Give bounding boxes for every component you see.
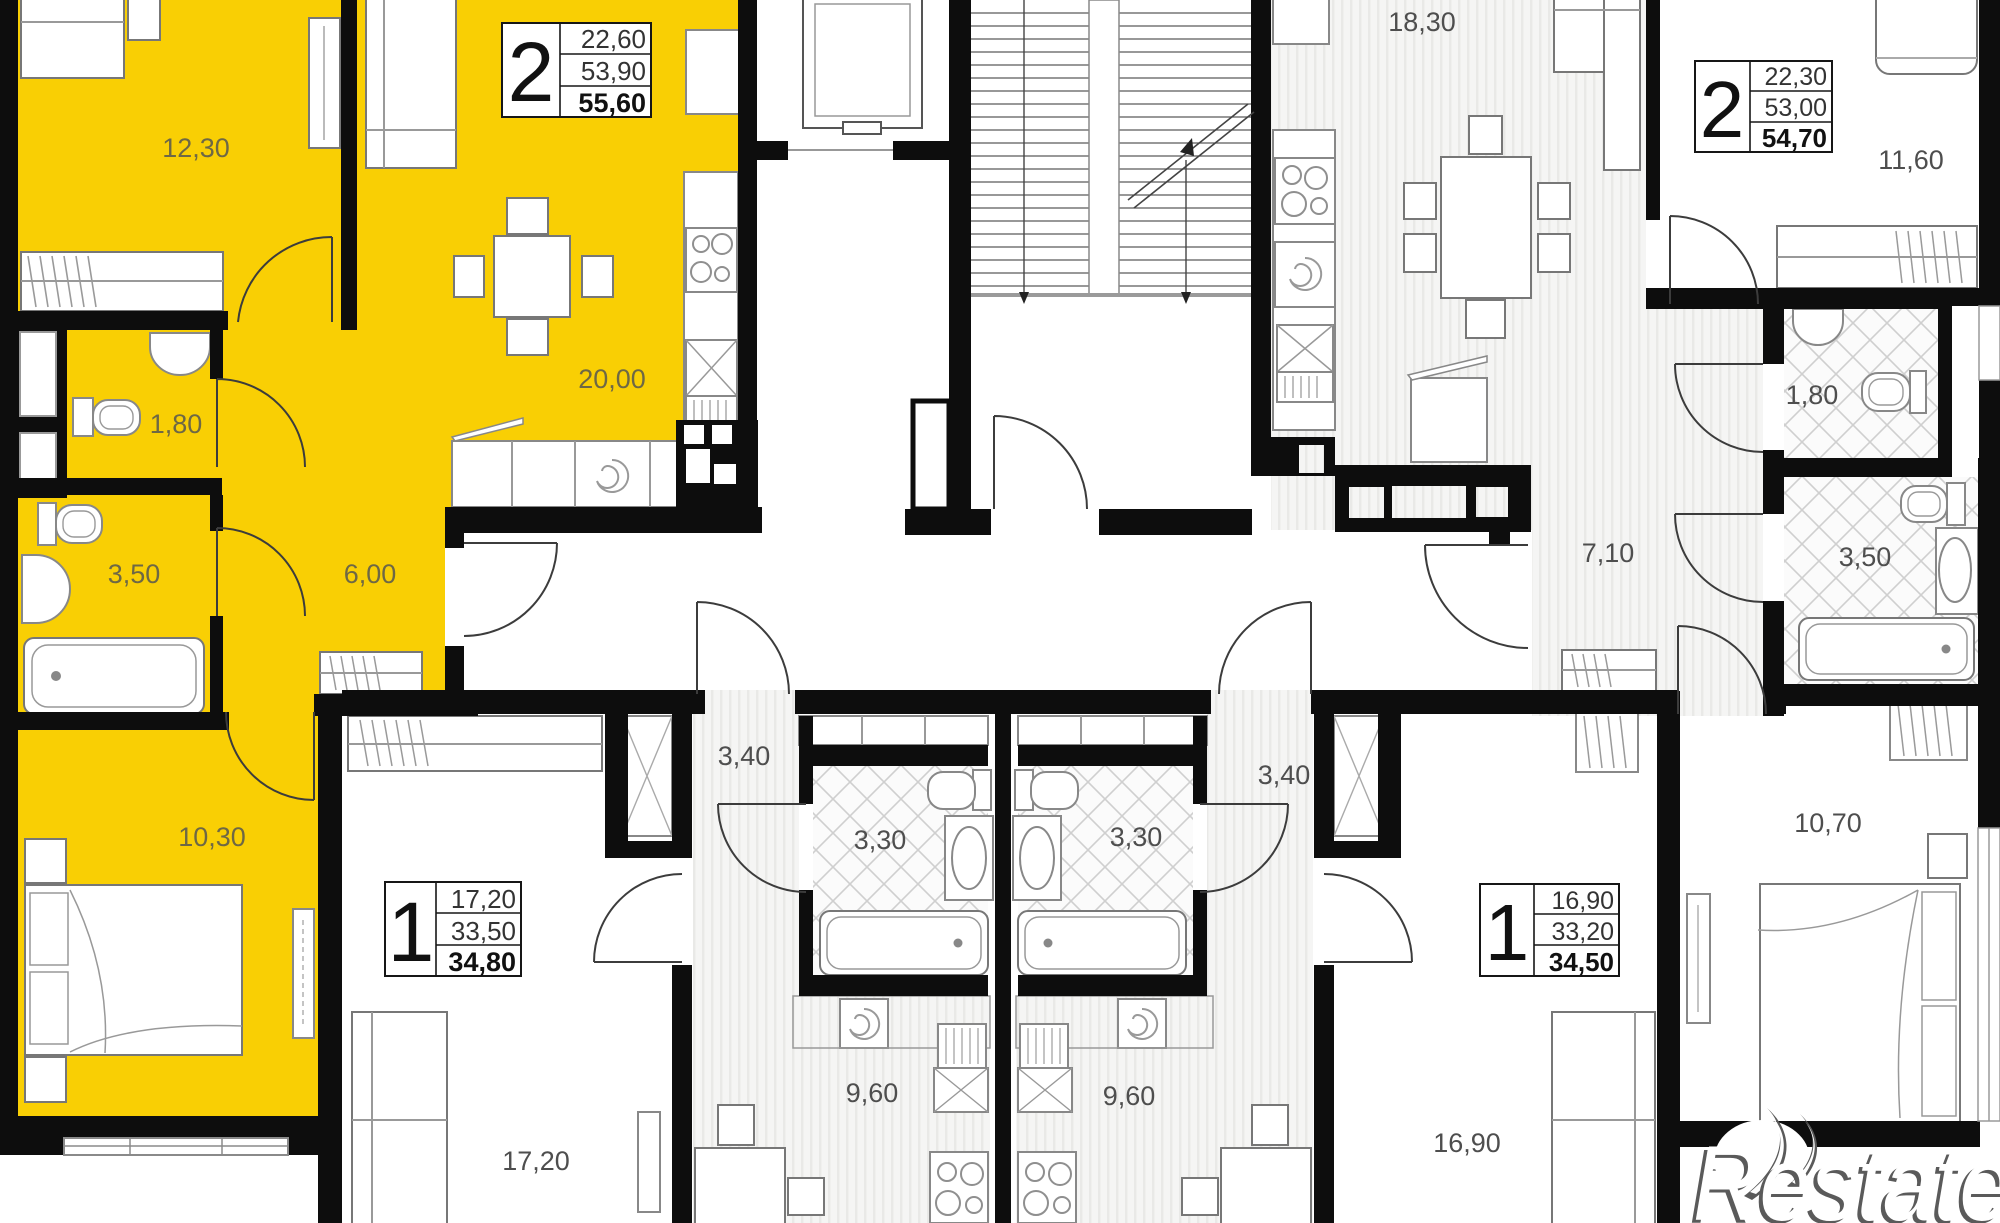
svg-text:54,70: 54,70 [1762, 123, 1827, 153]
svg-text:3,50: 3,50 [108, 559, 161, 589]
svg-text:22,60: 22,60 [581, 24, 646, 54]
svg-text:55,60: 55,60 [578, 88, 646, 118]
svg-text:16,90: 16,90 [1433, 1128, 1501, 1158]
svg-text:1,80: 1,80 [1786, 380, 1839, 410]
svg-text:9,60: 9,60 [1103, 1081, 1156, 1111]
svg-text:53,00: 53,00 [1764, 94, 1827, 122]
svg-text:18,30: 18,30 [1388, 7, 1456, 37]
svg-text:1: 1 [388, 885, 435, 979]
svg-text:53,90: 53,90 [581, 56, 646, 86]
svg-text:3,30: 3,30 [854, 825, 907, 855]
svg-text:6,00: 6,00 [344, 559, 397, 589]
svg-text:Restate: Restate [1693, 1125, 2000, 1223]
svg-text:11,60: 11,60 [1878, 145, 1944, 175]
svg-text:1: 1 [1485, 888, 1530, 977]
svg-text:17,20: 17,20 [451, 884, 516, 914]
svg-text:7,10: 7,10 [1582, 538, 1635, 568]
svg-text:16,90: 16,90 [1551, 887, 1614, 915]
svg-text:10,70: 10,70 [1794, 808, 1862, 838]
svg-text:2: 2 [1700, 65, 1745, 154]
svg-text:1,80: 1,80 [150, 409, 203, 439]
svg-text:3,50: 3,50 [1839, 542, 1892, 572]
svg-text:2: 2 [508, 25, 555, 119]
svg-text:34,80: 34,80 [448, 947, 516, 977]
svg-text:10,30: 10,30 [178, 822, 246, 852]
svg-text:17,20: 17,20 [502, 1146, 570, 1176]
svg-text:34,50: 34,50 [1549, 947, 1614, 977]
svg-text:33,20: 33,20 [1551, 918, 1614, 946]
svg-text:3,40: 3,40 [718, 741, 771, 771]
svg-text:20,00: 20,00 [578, 364, 646, 394]
svg-text:3,30: 3,30 [1110, 822, 1163, 852]
svg-text:3,40: 3,40 [1258, 760, 1311, 790]
svg-text:22,30: 22,30 [1764, 63, 1827, 91]
svg-text:9,60: 9,60 [846, 1078, 899, 1108]
svg-text:33,50: 33,50 [451, 916, 516, 946]
svg-text:12,30: 12,30 [162, 133, 230, 163]
